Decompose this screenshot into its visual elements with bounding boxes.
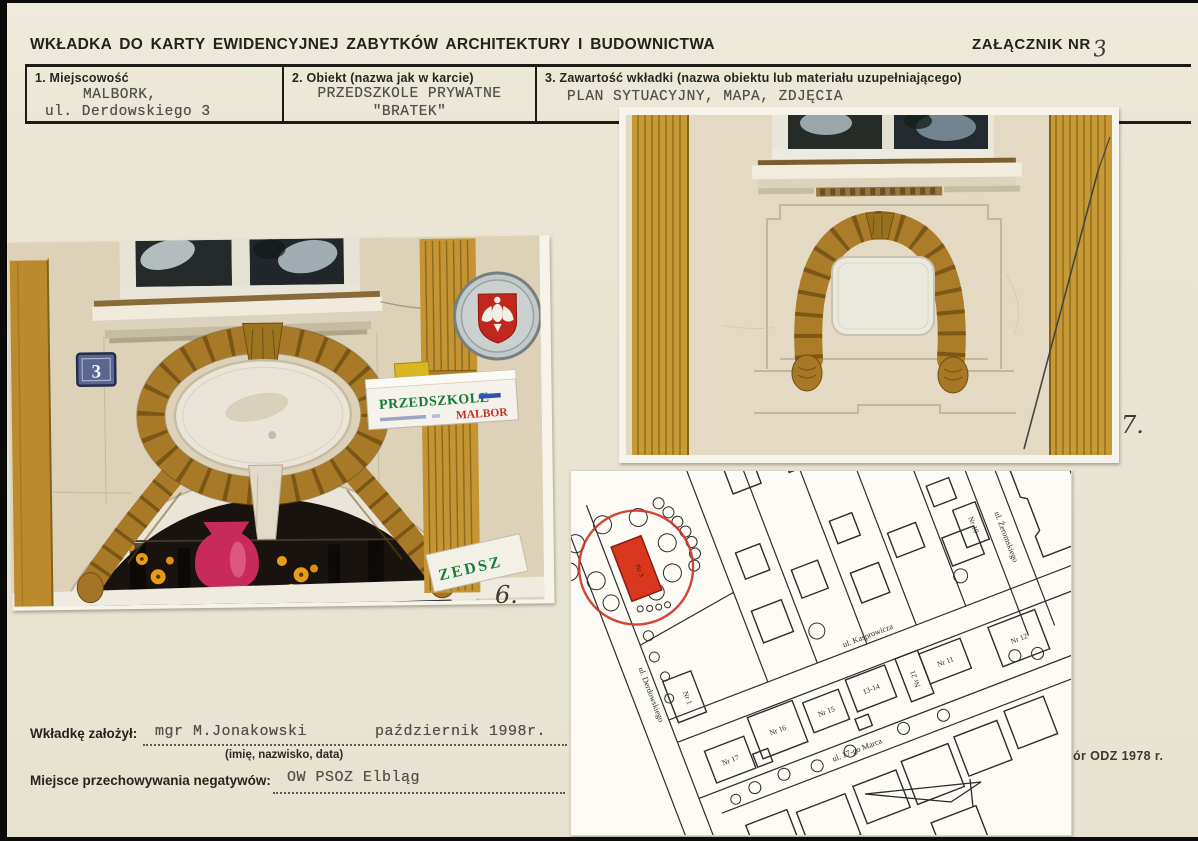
field-miejscowosc: 1. Miejscowość MALBORK, ul. Derdowskiego… [25,67,282,121]
house-number: 3 [91,362,101,383]
founder-dotted-line [143,743,567,746]
attachment-label: ZAŁĄCZNIK NR [972,36,1091,53]
window [772,115,994,159]
window-cornice [752,158,1022,198]
window [119,235,360,299]
form-code: ór ODZ 1978 r. [1073,749,1163,763]
field-value: "BRATEK" [292,104,527,121]
yellow-pilaster-left [632,115,688,455]
header-rule [25,64,1191,67]
photo-number-6: 6. [495,581,518,609]
field-label: 1. Miejscowość [35,71,274,85]
field-value: MALBORK, [83,87,274,104]
field-value: ul. Derdowskiego 3 [45,104,274,121]
field-label: 2. Obiekt (nazwa jak w karcie) [292,71,527,85]
negatives-dotted-line [273,791,565,794]
garland-tassel [938,357,968,393]
window-mullion [882,115,894,151]
negatives-value: OW PSOZ Elbląg [287,769,420,786]
founder-date: październik 1998r. [375,723,546,740]
yellow-pilaster-left [9,242,52,606]
attachment-number: 3 [1092,36,1109,62]
photo-facade-window [619,107,1119,463]
photo-facade-portal: PRZEDSZKOLE MALBOR ZEDSZ 3 [7,235,554,611]
cartouche-panel [832,257,934,335]
field-obiekt: 2. Obiekt (nazwa jak w karcie) PRZEDSZKO… [282,67,535,121]
card-page: WKŁADKA DO KARTY EWIDENCYJNEJ ZABYTKÓW A… [7,3,1198,837]
facade-window-image [626,115,1112,455]
state-emblem-plaque [454,272,541,359]
garland-tassel [792,355,822,391]
founder-name: mgr M.Jonakowski [155,723,307,740]
founder-hint: (imię, nazwisko, data) [225,749,343,761]
field-value: PRZEDSZKOLE PRYWATNE [292,86,527,103]
window-mullion [231,239,250,287]
field-label: 3. Zawartość wkładki (nazwa obiektu lub … [545,71,1183,85]
negatives-label: Miejsce przechowywania negatywów: [30,773,271,788]
photo-number-7: 7. [1121,411,1144,439]
facade-portal-image: PRZEDSZKOLE MALBOR ZEDSZ 3 [7,235,544,606]
field-value: PLAN SYTUACYJNY, MAPA, ZDJĘCIA [567,89,1183,106]
house-number-plate: 3 [77,353,115,386]
yellow-pilaster-right [1050,115,1112,455]
founder-label: Wkładkę założył: [30,726,137,741]
site-plan-map: Nr 3 ul. Derdowskiego ul. Kasprowicza ul… [570,470,1072,836]
page-title: WKŁADKA DO KARTY EWIDENCYJNEJ ZABYTKÓW A… [30,36,715,54]
site-plan-drawing: Nr 3 ul. Derdowskiego ul. Kasprowicza ul… [571,471,1071,835]
